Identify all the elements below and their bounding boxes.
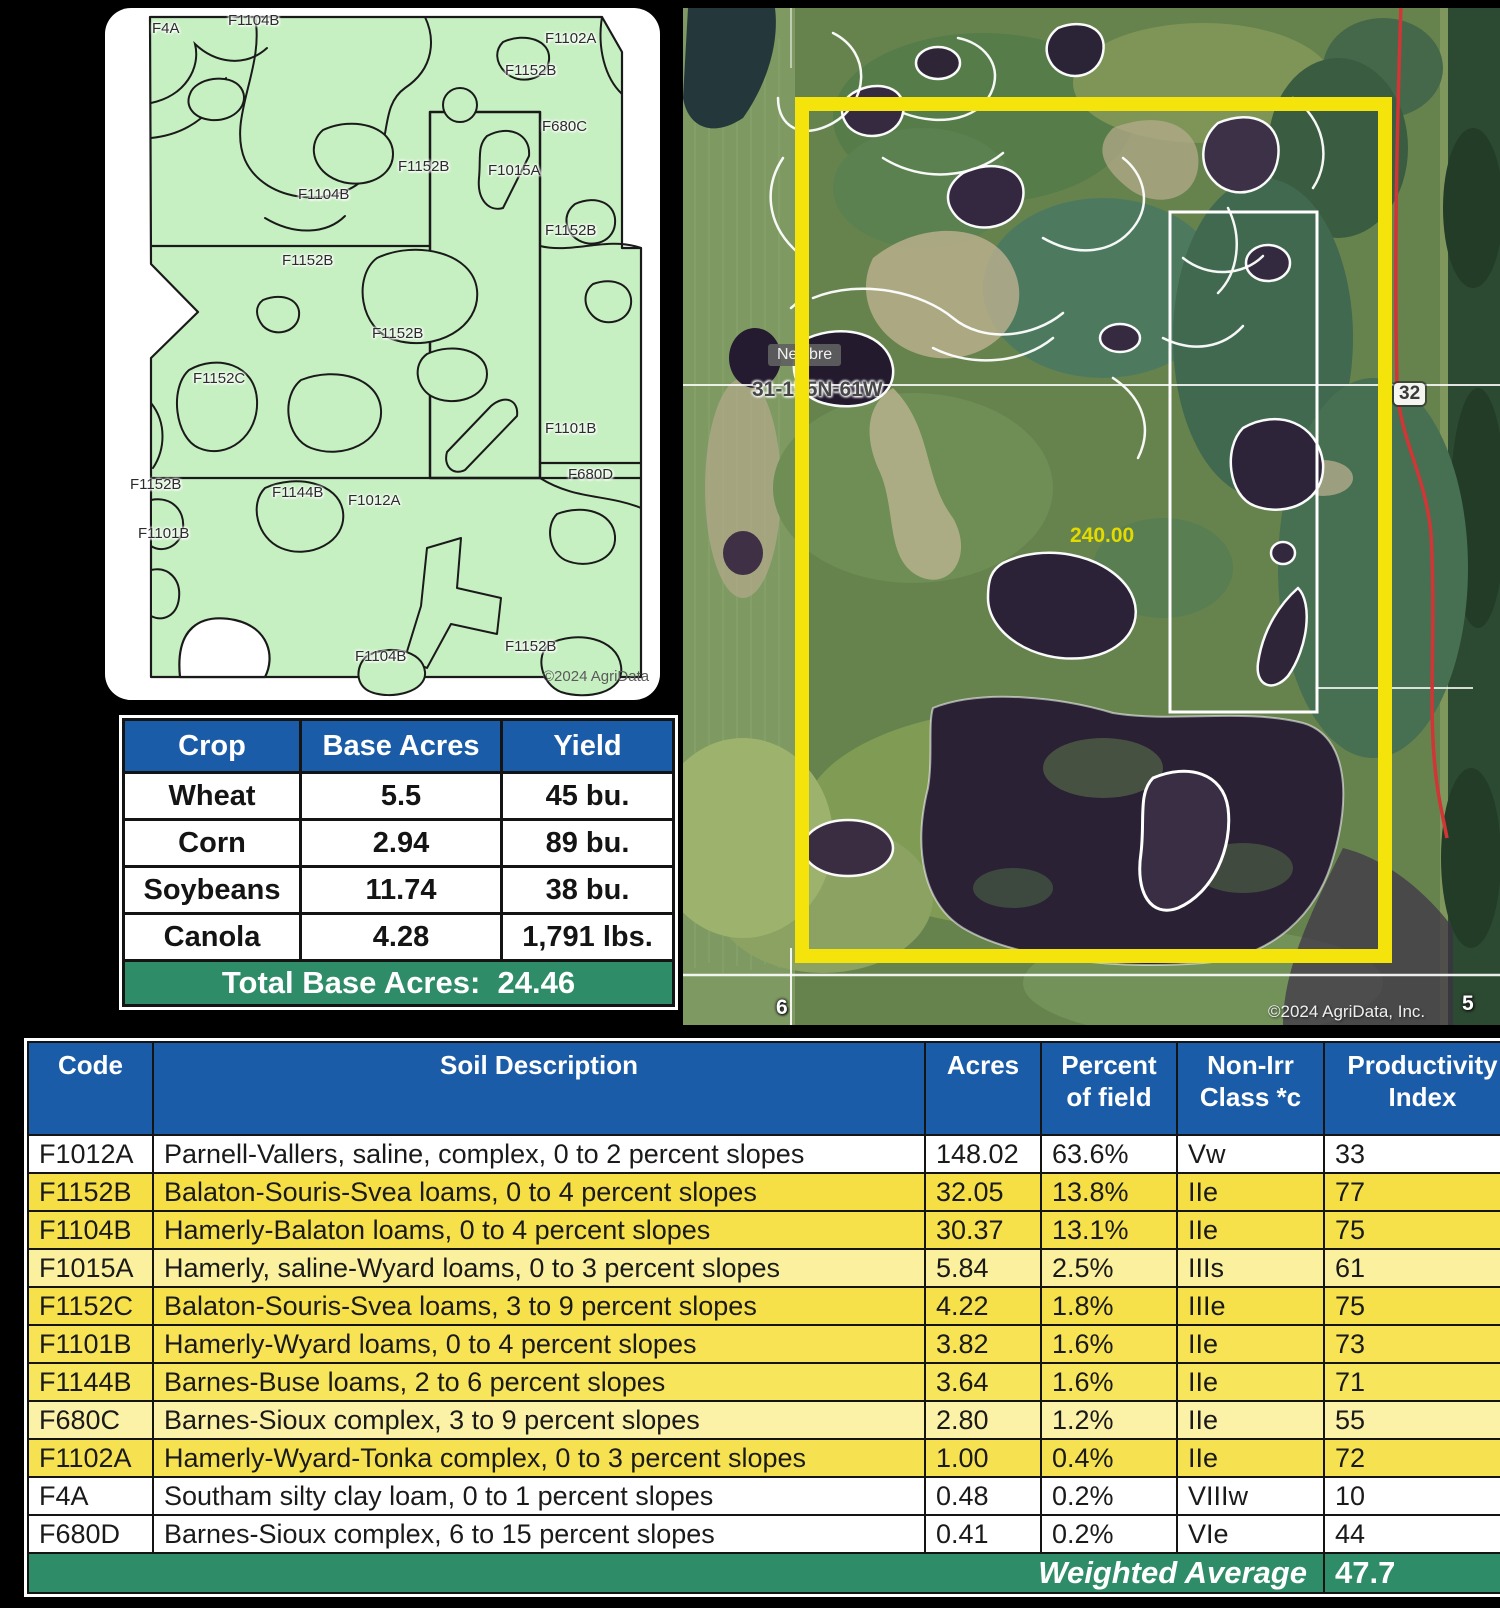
soil-code-label: F1101B bbox=[138, 525, 189, 542]
soil-cell: F1012A bbox=[28, 1135, 153, 1173]
crop-table-header-row: CropBase AcresYield bbox=[124, 720, 674, 773]
soil-code-label: F1101B bbox=[545, 420, 596, 437]
crop-column-header: Base Acres bbox=[301, 720, 502, 773]
soil-code-label: F1152B bbox=[545, 222, 596, 239]
soil-cell: Hamerly-Wyard-Tonka complex, 0 to 3 perc… bbox=[153, 1439, 925, 1477]
crop-row: Corn2.9489 bu. bbox=[124, 820, 674, 867]
table-row: F680CBarnes-Sioux complex, 3 to 9 percen… bbox=[28, 1401, 1500, 1439]
soil-cell: 13.1% bbox=[1041, 1211, 1177, 1249]
soil-cell: 10 bbox=[1324, 1477, 1500, 1515]
soil-cell: F4A bbox=[28, 1477, 153, 1515]
crop-total-row: Total Base Acres: 24.46 bbox=[124, 961, 674, 1006]
soil-cell: IIe bbox=[1177, 1211, 1324, 1249]
soil-map-drawing bbox=[105, 8, 660, 700]
soil-code-label: F1012A bbox=[348, 492, 401, 509]
table-row: F1101BHamerly-Wyard loams, 0 to 4 percen… bbox=[28, 1325, 1500, 1363]
crop-column-header: Yield bbox=[502, 720, 674, 773]
crop-cell: Canola bbox=[124, 914, 301, 961]
soil-cell: IIe bbox=[1177, 1439, 1324, 1477]
soil-report-page: F4AF1104BF1102AF1152BF680CF1152BF1015AF1… bbox=[0, 0, 1500, 1608]
crop-table: CropBase AcresYield Wheat5.545 bu.Corn2.… bbox=[119, 715, 678, 1010]
soil-cell: Hamerly-Balaton loams, 0 to 4 percent sl… bbox=[153, 1211, 925, 1249]
table-row: F1152BBalaton-Souris-Svea loams, 0 to 4 … bbox=[28, 1173, 1500, 1211]
soil-cell: Balaton-Souris-Svea loams, 3 to 9 percen… bbox=[153, 1287, 925, 1325]
soil-cell: 55 bbox=[1324, 1401, 1500, 1439]
soil-cell: VIIIw bbox=[1177, 1477, 1324, 1515]
section-number-6: 6 bbox=[776, 996, 788, 1020]
soil-cell: F1152B bbox=[28, 1173, 153, 1211]
soil-code-label: F4A bbox=[152, 20, 180, 37]
soil-table-header-row: CodeSoil DescriptionAcresPercentof field… bbox=[28, 1042, 1500, 1135]
soil-cell: Parnell-Vallers, saline, complex, 0 to 2… bbox=[153, 1135, 925, 1173]
soil-code-label: F1104B bbox=[228, 12, 279, 29]
soil-cell: 75 bbox=[1324, 1211, 1500, 1249]
crop-cell: 11.74 bbox=[301, 867, 502, 914]
soil-map: F4AF1104BF1102AF1152BF680CF1152BF1015AF1… bbox=[105, 8, 660, 700]
weighted-average-label: Weighted Average bbox=[28, 1553, 1324, 1593]
soil-cell: 3.64 bbox=[925, 1363, 1041, 1401]
soil-cell: 5.84 bbox=[925, 1249, 1041, 1287]
soil-cell: IIIs bbox=[1177, 1249, 1324, 1287]
soil-cell: 75 bbox=[1324, 1287, 1500, 1325]
soil-cell: Vw bbox=[1177, 1135, 1324, 1173]
parcel-boundary bbox=[795, 97, 1392, 963]
soil-column-header: Acres bbox=[925, 1042, 1041, 1135]
total-base-acres-value: 24.46 bbox=[498, 965, 576, 1000]
crop-cell: Corn bbox=[124, 820, 301, 867]
soil-cell: F1152C bbox=[28, 1287, 153, 1325]
crop-cell: 89 bu. bbox=[502, 820, 674, 867]
soil-cell: F680C bbox=[28, 1401, 153, 1439]
soil-cell: 44 bbox=[1324, 1515, 1500, 1553]
soil-cell: IIe bbox=[1177, 1173, 1324, 1211]
weighted-average-value: 47.7 bbox=[1324, 1553, 1500, 1593]
table-row: F1152CBalaton-Souris-Svea loams, 3 to 9 … bbox=[28, 1287, 1500, 1325]
soil-column-header: Code bbox=[28, 1042, 153, 1135]
table-row: F1015AHamerly, saline-Wyard loams, 0 to … bbox=[28, 1249, 1500, 1287]
map-copyright: ©2024 AgriData bbox=[543, 668, 649, 685]
soil-cell: Hamerly-Wyard loams, 0 to 4 percent slop… bbox=[153, 1325, 925, 1363]
soil-cell: 72 bbox=[1324, 1439, 1500, 1477]
total-base-acres: Total Base Acres: 24.46 bbox=[124, 961, 674, 1006]
soil-cell: 1.2% bbox=[1041, 1401, 1177, 1439]
soil-cell: 0.41 bbox=[925, 1515, 1041, 1553]
soil-cell: 0.2% bbox=[1041, 1515, 1177, 1553]
crop-cell: Wheat bbox=[124, 773, 301, 820]
crop-cell: 45 bu. bbox=[502, 773, 674, 820]
soil-table: CodeSoil DescriptionAcresPercentof field… bbox=[24, 1038, 1500, 1597]
soil-cell: 4.22 bbox=[925, 1287, 1041, 1325]
soil-cell: 0.48 bbox=[925, 1477, 1041, 1515]
soil-cell: Southam silty clay loam, 0 to 1 percent … bbox=[153, 1477, 925, 1515]
soil-code-label: F1152B bbox=[398, 158, 449, 175]
weighted-average-row: Weighted Average 47.7 bbox=[28, 1553, 1500, 1593]
soil-cell: Barnes-Sioux complex, 6 to 15 percent sl… bbox=[153, 1515, 925, 1553]
table-row: F1102AHamerly-Wyard-Tonka complex, 0 to … bbox=[28, 1439, 1500, 1477]
soil-cell: 0.2% bbox=[1041, 1477, 1177, 1515]
table-row: F1104BHamerly-Balaton loams, 0 to 4 perc… bbox=[28, 1211, 1500, 1249]
soil-cell: Balaton-Souris-Svea loams, 0 to 4 percen… bbox=[153, 1173, 925, 1211]
crop-cell: Soybeans bbox=[124, 867, 301, 914]
soil-cell: 3.82 bbox=[925, 1325, 1041, 1363]
soil-code-label: F1144B bbox=[272, 484, 323, 501]
crop-column-header: Crop bbox=[124, 720, 301, 773]
crop-cell: 4.28 bbox=[301, 914, 502, 961]
soil-code-label: F1152C bbox=[193, 370, 245, 387]
section-number-5: 5 bbox=[1462, 992, 1474, 1016]
soil-cell: 33 bbox=[1324, 1135, 1500, 1173]
soil-column-header: Non-IrrClass *c bbox=[1177, 1042, 1324, 1135]
soil-cell: 2.80 bbox=[925, 1401, 1041, 1439]
soil-code-label: F680C bbox=[542, 118, 587, 135]
soil-cell: 13.8% bbox=[1041, 1173, 1177, 1211]
soil-code-label: F1102A bbox=[545, 30, 596, 47]
soil-cell: F1102A bbox=[28, 1439, 153, 1477]
soil-cell: 2.5% bbox=[1041, 1249, 1177, 1287]
soil-cell: VIe bbox=[1177, 1515, 1324, 1553]
soil-cell: 63.6% bbox=[1041, 1135, 1177, 1173]
soil-cell: 32.05 bbox=[925, 1173, 1041, 1211]
soil-cell: 1.6% bbox=[1041, 1325, 1177, 1363]
soil-code-label: F1104B bbox=[298, 186, 349, 203]
soil-cell: Barnes-Sioux complex, 3 to 9 percent slo… bbox=[153, 1401, 925, 1439]
crop-row: Soybeans11.7438 bu. bbox=[124, 867, 674, 914]
soil-code-label: F1152B bbox=[282, 252, 333, 269]
soil-code-label: F680D bbox=[568, 466, 613, 483]
soil-cell: 73 bbox=[1324, 1325, 1500, 1363]
soil-cell: 71 bbox=[1324, 1363, 1500, 1401]
total-base-acres-label: Total Base Acres: bbox=[222, 965, 480, 1000]
table-row: F4ASoutham silty clay loam, 0 to 1 perce… bbox=[28, 1477, 1500, 1515]
soil-cell: F1015A bbox=[28, 1249, 153, 1287]
soil-cell: 77 bbox=[1324, 1173, 1500, 1211]
soil-cell: 148.02 bbox=[925, 1135, 1041, 1173]
crop-cell: 38 bu. bbox=[502, 867, 674, 914]
soil-cell: F680D bbox=[28, 1515, 153, 1553]
soil-cell: 1.8% bbox=[1041, 1287, 1177, 1325]
soil-column-header: Percentof field bbox=[1041, 1042, 1177, 1135]
soil-cell: 1.6% bbox=[1041, 1363, 1177, 1401]
aerial-copyright: ©2024 AgriData, Inc. bbox=[1268, 1002, 1425, 1022]
soil-cell: F1101B bbox=[28, 1325, 153, 1363]
soil-code-label: F1152B bbox=[130, 476, 181, 493]
soil-cell: 0.4% bbox=[1041, 1439, 1177, 1477]
table-row: F1144BBarnes-Buse loams, 2 to 6 percent … bbox=[28, 1363, 1500, 1401]
soil-column-header: Soil Description bbox=[153, 1042, 925, 1135]
aerial-photo: Newbre 31-155N-61W 240.00 32 6 5 ©2024 A… bbox=[683, 8, 1500, 1025]
soil-cell: IIIe bbox=[1177, 1287, 1324, 1325]
soil-cell: 61 bbox=[1324, 1249, 1500, 1287]
soil-cell: 1.00 bbox=[925, 1439, 1041, 1477]
soil-code-label: F1152B bbox=[505, 638, 556, 655]
soil-cell: IIe bbox=[1177, 1325, 1324, 1363]
crop-row: Canola4.281,791 lbs. bbox=[124, 914, 674, 961]
soil-code-label: F1152B bbox=[372, 325, 423, 342]
soil-code-label: F1015A bbox=[488, 162, 541, 179]
crop-row: Wheat5.545 bu. bbox=[124, 773, 674, 820]
soil-cell: IIe bbox=[1177, 1401, 1324, 1439]
crop-cell: 2.94 bbox=[301, 820, 502, 867]
soil-cell: F1104B bbox=[28, 1211, 153, 1249]
table-row: F680DBarnes-Sioux complex, 6 to 15 perce… bbox=[28, 1515, 1500, 1553]
section-number-32: 32 bbox=[1394, 383, 1425, 405]
soil-column-header: ProductivityIndex bbox=[1324, 1042, 1500, 1135]
crop-cell: 1,791 lbs. bbox=[502, 914, 674, 961]
soil-cell: 30.37 bbox=[925, 1211, 1041, 1249]
soil-cell: F1144B bbox=[28, 1363, 153, 1401]
table-row: F1012AParnell-Vallers, saline, complex, … bbox=[28, 1135, 1500, 1173]
soil-cell: Hamerly, saline-Wyard loams, 0 to 3 perc… bbox=[153, 1249, 925, 1287]
crop-cell: 5.5 bbox=[301, 773, 502, 820]
soil-code-label: F1152B bbox=[505, 62, 556, 79]
soil-code-label: F1104B bbox=[355, 648, 406, 665]
soil-cell: Barnes-Buse loams, 2 to 6 percent slopes bbox=[153, 1363, 925, 1401]
soil-cell: IIe bbox=[1177, 1363, 1324, 1401]
